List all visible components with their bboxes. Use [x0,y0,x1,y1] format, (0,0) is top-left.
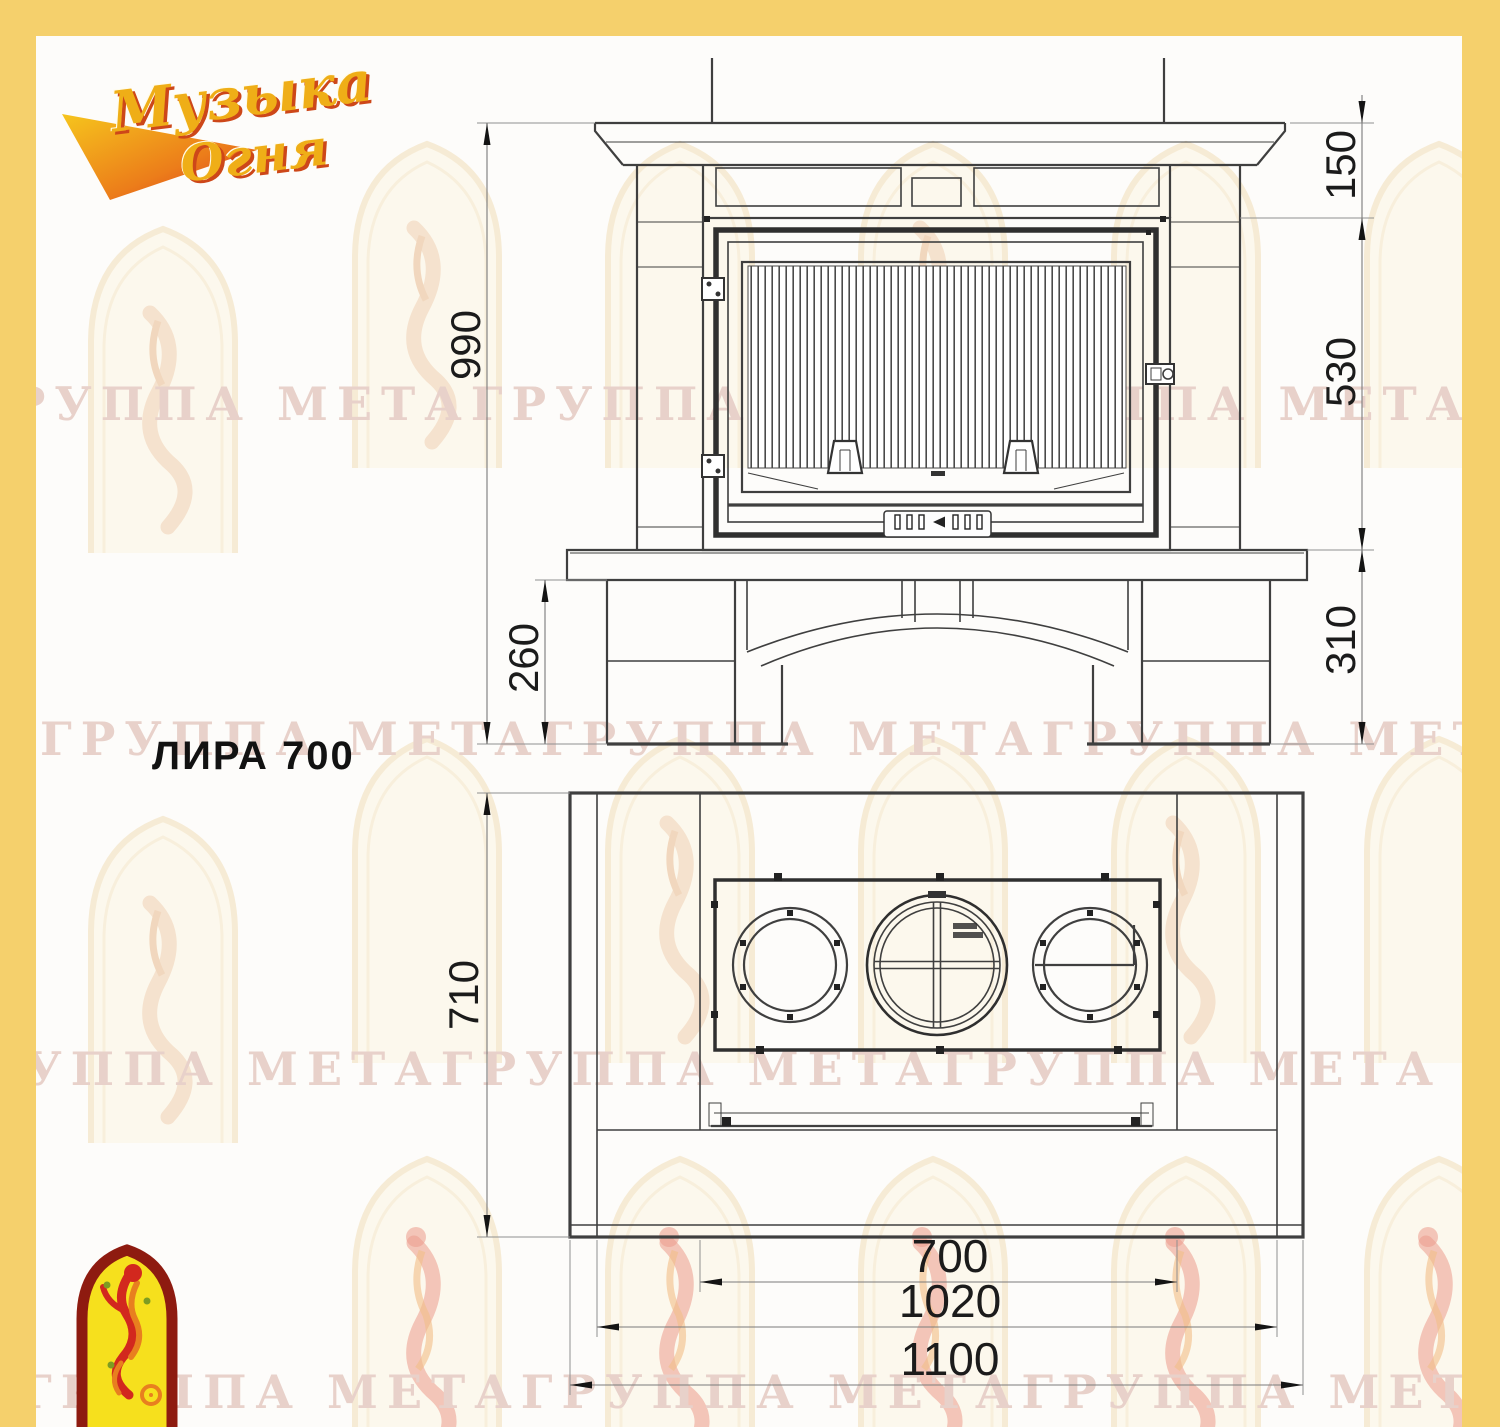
flue-outlet-center [867,891,1007,1035]
dim-firebox-height: 530 [1317,337,1364,407]
dim-total-width: 1100 [901,1333,1000,1385]
brand-logo: Музыка Огня [52,62,352,212]
insert-bolt-ticks [711,873,1160,1054]
scanned-drawing-page: ГРУППА МЕТАГРУППА МЕТАГРУППА МЕТА ГРУППА… [0,0,1500,1427]
air-outlet-left [733,908,847,1022]
page-border-left [0,0,36,1427]
technical-drawing: 990 260 150 530 310 [0,0,1500,1427]
front-view-drawing [567,58,1307,744]
door-latch [1146,364,1174,384]
mascot-arch-logo [75,1243,185,1427]
dim-hearth-height: 310 [1317,605,1364,675]
page-border-right [1462,0,1500,1427]
air-outlet-right [1033,908,1147,1022]
dim-depth: 710 [440,960,487,1030]
air-control-knobs [884,511,991,537]
model-title: ЛИРА 700 [152,734,355,779]
dim-top-offset: 150 [1317,130,1364,200]
insert-front-frame [709,1103,1153,1126]
door-hinges [702,278,724,477]
plan-view-drawing [570,793,1303,1237]
dim-base-height: 260 [500,623,547,693]
dim-total-height: 990 [442,310,489,380]
dim-body-width: 1020 [899,1275,1001,1327]
page-border-top [0,0,1500,36]
